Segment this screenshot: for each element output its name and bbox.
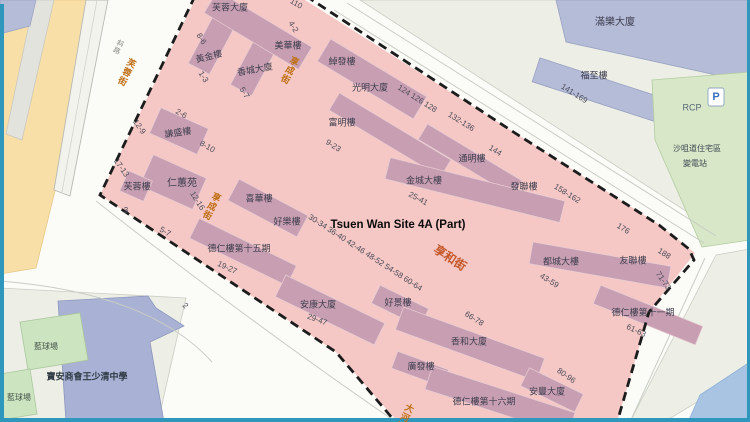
number-label: 4-2 — [287, 20, 300, 34]
place-label: RCP — [682, 104, 701, 113]
building-label: 德仁樓第十六期 — [452, 398, 515, 407]
place-label: 寶安商會王少清中學 — [46, 373, 127, 382]
number-label: 71-73 — [654, 270, 672, 291]
map-canvas: Tsuen Wan Site 4A (Part) P 芙蓉街享成街享成街享和街大… — [0, 0, 750, 422]
label-layer: Tsuen Wan Site 4A (Part) P 芙蓉街享成街享成街享和街大… — [0, 0, 750, 422]
number-label: 144 — [487, 144, 503, 158]
building-label: 通明樓 — [458, 155, 485, 164]
place-label: 藍球場 — [34, 343, 58, 351]
building-label: 友聯樓 — [619, 257, 646, 266]
building-label: 黃金樓 — [195, 49, 223, 64]
number-label: 188 — [656, 247, 672, 261]
place-label: 變電站 — [683, 160, 707, 168]
place-label: 滿樂大廈 — [595, 18, 635, 28]
building-label: 德仁樓第十五期 — [207, 245, 270, 254]
street-label: 享和街 — [432, 243, 469, 273]
number-label: 158-162 — [552, 183, 581, 205]
number-label: 110 — [288, 0, 303, 11]
site-title-label: Tsuen Wan Site 4A (Part) — [330, 219, 465, 231]
number-label: 5-7 — [158, 226, 172, 239]
building-label: 金城大樓 — [406, 177, 442, 186]
building-label: 德仁樓第十一期 — [611, 309, 674, 318]
building-label: 仁蕙苑 — [167, 179, 197, 189]
number-label: 25-41 — [407, 191, 429, 208]
building-label: 廣發樓 — [407, 363, 434, 372]
building-label: 發聯樓 — [510, 183, 537, 192]
building-label: 都城大樓 — [543, 258, 579, 267]
building-label: 好景樓 — [384, 299, 411, 308]
number-label: 176 — [615, 222, 631, 236]
number-label: 9-23 — [324, 138, 342, 153]
number-label: 19-27 — [216, 260, 238, 276]
building-label: 芙蓉大廈 — [212, 4, 248, 13]
building-label: 香城大廈 — [236, 62, 273, 77]
building-label: 香和大廈 — [451, 338, 487, 347]
street-label: 享成街 — [278, 55, 299, 86]
number-label: 80-96 — [555, 367, 576, 385]
building-label: 安豐大廈 — [529, 388, 565, 397]
building-label: 光明大廈 — [352, 84, 388, 93]
building-label: 美華樓 — [274, 42, 301, 51]
number-label: 132-136 — [446, 111, 475, 133]
number-label: 66-78 — [463, 310, 485, 328]
building-label: 好樂樓 — [273, 218, 300, 227]
place-label: 福至樓 — [580, 72, 607, 81]
number-label: 1-3 — [197, 70, 210, 84]
number-label: 5-7 — [238, 86, 251, 100]
number-label: 3 — [124, 207, 128, 215]
parking-icon: P — [712, 91, 719, 103]
place-label: 沙咀道住宅區 — [673, 145, 721, 153]
number-label: 124 126 128 — [396, 84, 438, 114]
number-label: 17-13 — [112, 157, 130, 178]
building-label: 綽發樓 — [328, 58, 355, 67]
place-label: 藍球場 — [7, 394, 31, 402]
building-label: 富明樓 — [328, 119, 355, 128]
number-label: 2-6 — [174, 108, 188, 121]
place-label: 斜路 — [111, 38, 124, 55]
number-label: 8-6 — [195, 32, 208, 46]
street-label: 芙蓉街 — [115, 57, 136, 88]
number-label: 141-169 — [559, 83, 588, 105]
building-label: 謙盛樓 — [164, 127, 192, 140]
number-label: 2 — [181, 302, 190, 311]
building-label: 安康大廈 — [300, 301, 336, 310]
number-label: 12-16 — [188, 190, 206, 212]
building-label: 芙蓉樓 — [123, 183, 150, 192]
building-label: 喜華樓 — [245, 195, 272, 204]
number-label: 12-9 — [131, 118, 147, 136]
street-label: 大河道 — [393, 402, 414, 422]
number-label: 8-10 — [198, 140, 216, 155]
number-label: 61-63 — [625, 323, 647, 339]
number-label: 43-59 — [538, 272, 560, 290]
number-label: 29-47 — [306, 313, 328, 328]
